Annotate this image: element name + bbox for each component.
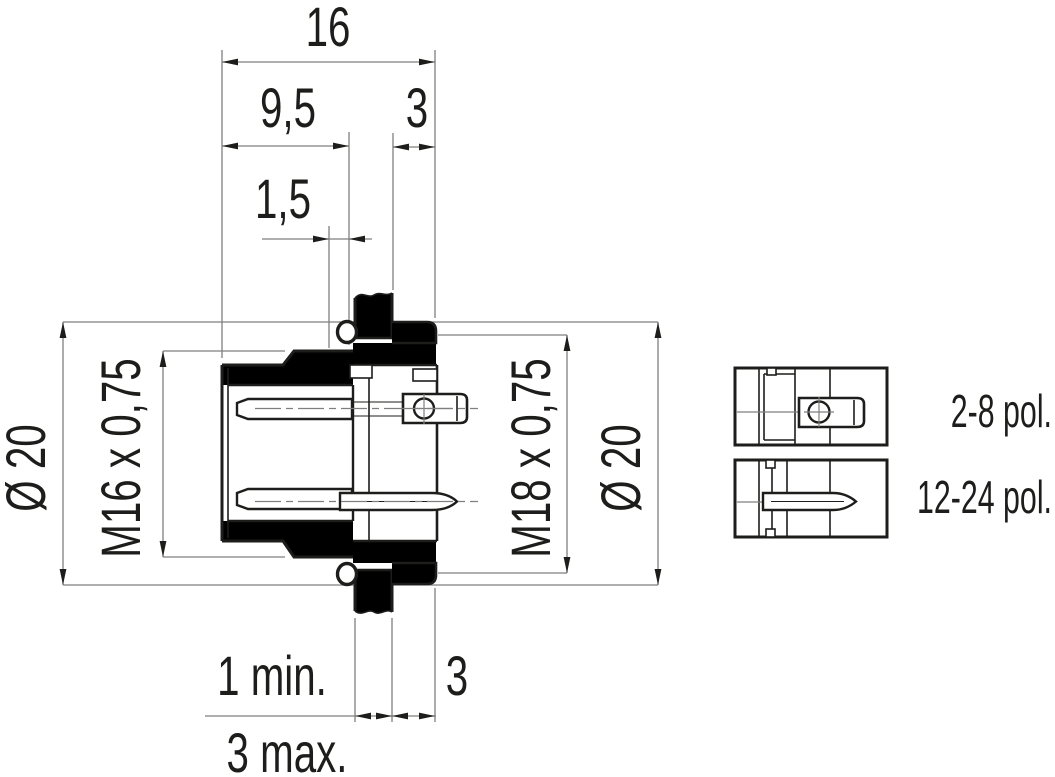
- variant-view-2-8-pol: [735, 368, 887, 445]
- variant-label-2-8-pol: 2-8 pol.: [951, 387, 1052, 438]
- panel-wall-top: [355, 293, 392, 338]
- technical-drawing-page: 16 9,5 3 1,5 Ø 20 M16 x 0,75 M18 x 0,75 …: [0, 0, 1055, 777]
- arrowhead: [564, 557, 571, 573]
- arrowhead: [60, 569, 67, 585]
- shell-hatch-top: [222, 351, 353, 385]
- dim-rear-clearance-label: 3: [446, 646, 468, 708]
- rear-nut-top: [392, 322, 436, 343]
- arrowhead: [313, 236, 329, 243]
- contact-pin-lower: [237, 489, 352, 509]
- arrowhead: [349, 236, 365, 243]
- body-hatch-top: [353, 343, 436, 365]
- dim-rear-protrusion-label: 3: [406, 78, 428, 140]
- arrowhead: [355, 713, 371, 720]
- dim-flange-diameter-label: Ø 20: [0, 424, 58, 511]
- key-notch: [767, 368, 776, 375]
- arrowhead: [222, 143, 238, 150]
- dim-rear-diameter-label: Ø 20: [591, 424, 653, 511]
- arrowhead: [419, 144, 435, 151]
- o-ring-bottom: [338, 564, 357, 585]
- arrowhead: [160, 351, 167, 367]
- dim-front-thread-label: M16 x 0,75: [91, 358, 153, 557]
- keyway-detail: [350, 365, 372, 378]
- dim-total-width-label: 16: [306, 0, 351, 59]
- rear-nut-bottom: [392, 563, 436, 584]
- arrowhead: [333, 143, 349, 150]
- variant-labels: 2-8 pol. 12-24 pol.: [917, 387, 1052, 524]
- dimension-labels: 16 9,5 3 1,5 Ø 20 M16 x 0,75 M18 x 0,75 …: [0, 0, 653, 777]
- dim-groove-label: 1,5: [255, 169, 311, 231]
- dim-panel-min-label: 1 min.: [217, 646, 327, 708]
- arrowhead: [419, 713, 435, 720]
- variant-label-12-24-pol: 12-24 pol.: [917, 473, 1052, 524]
- o-ring-top: [338, 322, 357, 343]
- arrowhead: [376, 713, 392, 720]
- dim-panel-max-label: 3 max.: [227, 723, 348, 777]
- arrowhead: [564, 335, 571, 351]
- key-notch: [766, 460, 775, 468]
- arrowhead: [222, 59, 238, 66]
- shell-hatch-bottom: [222, 521, 353, 557]
- arrowhead: [392, 713, 408, 720]
- panel-wall-bottom: [355, 570, 392, 613]
- body-hatch-bottom: [353, 541, 436, 563]
- connector-technical-drawing: 16 9,5 3 1,5 Ø 20 M16 x 0,75 M18 x 0,75 …: [0, 0, 1055, 777]
- dim-front-length-label: 9,5: [260, 78, 316, 140]
- arrowhead: [655, 322, 662, 338]
- dim-rear-thread-label: M18 x 0,75: [501, 358, 563, 557]
- arrowhead: [655, 569, 662, 585]
- arrowhead: [419, 59, 435, 66]
- key-notch: [766, 529, 775, 537]
- arrowhead: [60, 322, 67, 338]
- variant-view-12-24-pol: [735, 460, 887, 537]
- arrowhead: [393, 144, 409, 151]
- arrowhead: [160, 541, 167, 557]
- body-step-detail: [413, 369, 437, 381]
- connector-cross-section: [222, 293, 478, 613]
